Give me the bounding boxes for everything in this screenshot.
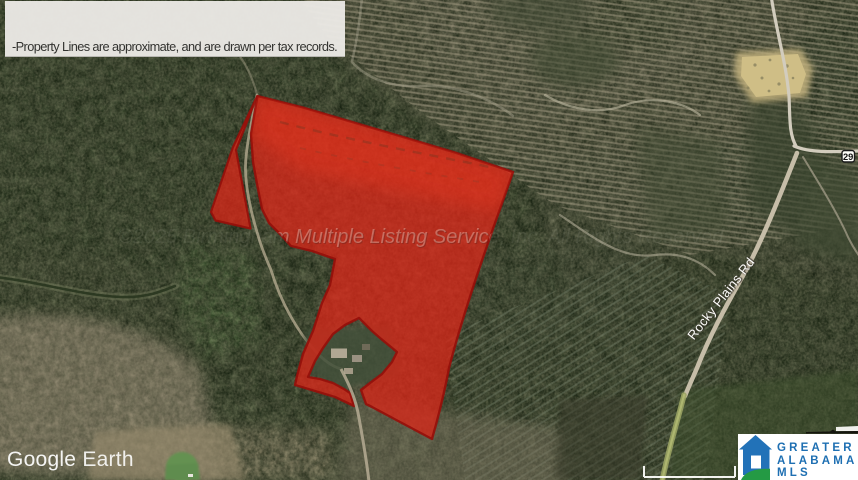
svg-text:29: 29 (843, 152, 853, 162)
